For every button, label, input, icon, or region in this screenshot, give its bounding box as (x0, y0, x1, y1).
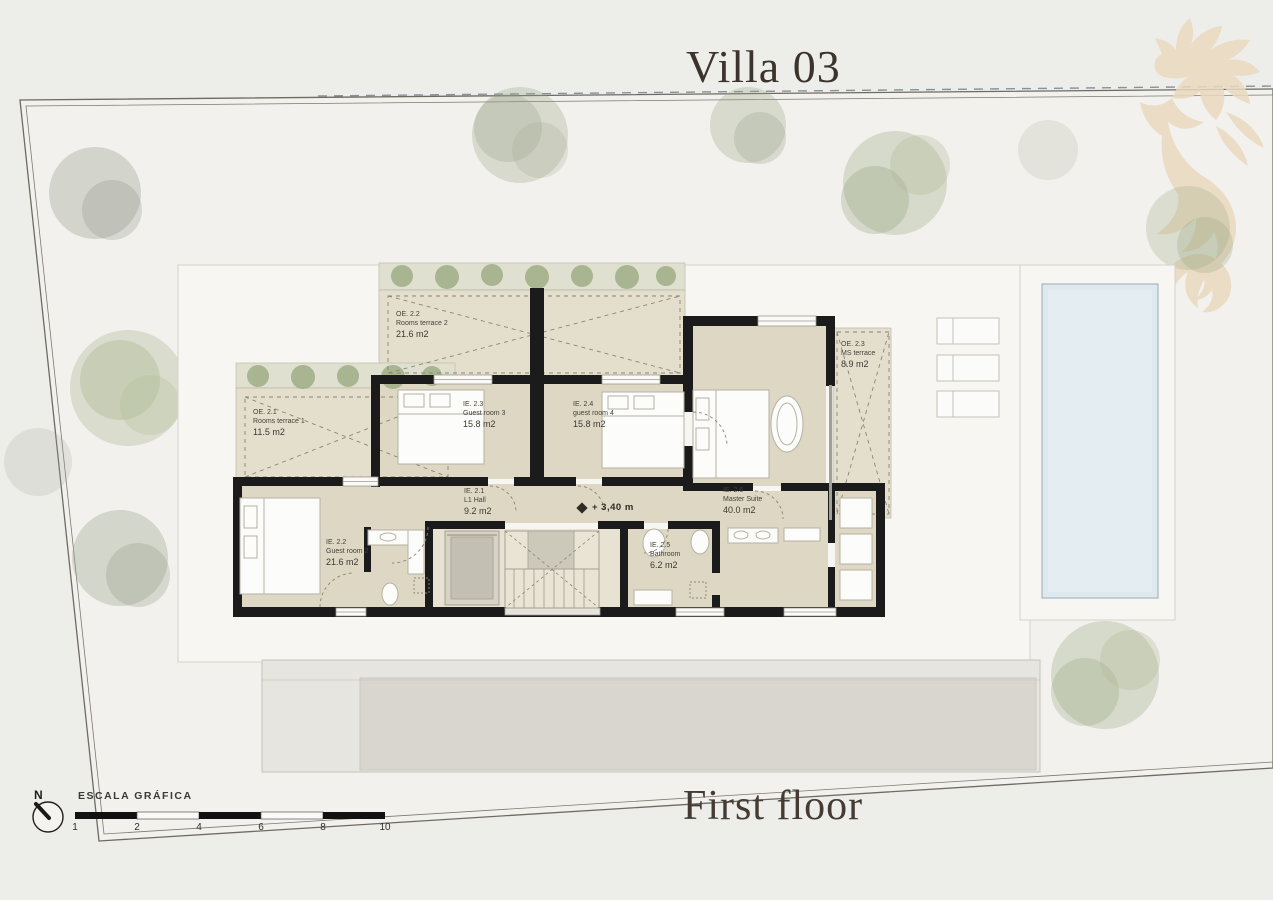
tree-icon (571, 265, 593, 287)
room-area: 11.5 m2 (253, 427, 353, 439)
tree-icon (247, 365, 269, 387)
closet-icon (445, 531, 499, 605)
bench-icon (784, 528, 820, 541)
scale-tick: 10 (379, 822, 390, 833)
room-code: OE. 2.3 (841, 340, 889, 349)
room-name: Rooms terrace 1 (253, 417, 353, 426)
room-name: Bathroom (650, 550, 702, 559)
north-label: N (34, 788, 43, 802)
room-code: IE. 2.5 (650, 541, 702, 550)
room-label-master-suite: IE. 2.6 Master Suite 40.0 m2 (723, 486, 813, 517)
lounger-icon (937, 318, 999, 344)
room-area: 21.6 m2 (396, 329, 496, 341)
room-name: Master Suite (723, 495, 813, 504)
room-name: L1 Hall (464, 496, 544, 505)
floorplan-drawing (0, 0, 1273, 900)
scale-tick: 6 (258, 822, 264, 833)
level-marker: + 3,40 m (592, 502, 634, 513)
bathtub-icon (771, 396, 803, 452)
vanity-icon (728, 528, 778, 543)
tree-icon (435, 265, 459, 289)
room-code: IE. 2.6 (723, 486, 813, 495)
room-label-rooms-terrace-1: OE. 2.1 Rooms terrace 1 11.5 m2 (253, 408, 353, 439)
room-name: Rooms terrace 2 (396, 319, 496, 328)
tree-icon (291, 365, 315, 389)
tree-icon (4, 428, 72, 496)
room-label-guest-room-4: IE. 2.4 guest room 4 15.8 m2 (573, 400, 663, 431)
scale-bar (75, 812, 385, 819)
room-label-bathroom: IE. 2.5 Bathroom 6.2 m2 (650, 541, 702, 572)
room-name: Guest room 3 (463, 409, 553, 418)
scale-tick: 2 (134, 822, 140, 833)
floorplan-sheet: Villa 03 First floor OE. 2.2 Rooms terra… (0, 0, 1273, 900)
room-label-ms-terrace: OE. 2.3 MS terrace 8.9 m2 (841, 340, 889, 371)
scale-bar-label: ESCALA GRÁFICA (78, 790, 193, 802)
scale-tick: 4 (196, 822, 202, 833)
room-area: 15.8 m2 (573, 419, 663, 431)
tree-icon (525, 265, 549, 289)
room-area: 40.0 m2 (723, 505, 813, 517)
page-title: Villa 03 (686, 40, 841, 93)
scale-tick: 1 (72, 822, 78, 833)
tree-icon (337, 365, 359, 387)
room-name: guest room 4 (573, 409, 663, 418)
bed-icon (693, 390, 769, 478)
room-code: IE. 2.4 (573, 400, 663, 409)
room-area: 15.8 m2 (463, 419, 553, 431)
pool (1042, 284, 1158, 598)
tree-icon (656, 266, 676, 286)
tree-icon (472, 87, 568, 183)
room-code: IE. 2.1 (464, 487, 544, 496)
driveway (262, 660, 1040, 772)
room-area: 9.2 m2 (464, 506, 544, 518)
lounger-icon (937, 355, 999, 381)
room-label-hall: IE. 2.1 L1 Hall 9.2 m2 (464, 487, 544, 518)
room-code: OE. 2.1 (253, 408, 353, 417)
tree-icon (391, 265, 413, 287)
room-label-rooms-terrace-2: OE. 2.2 Rooms terrace 2 21.6 m2 (396, 310, 496, 341)
toilet-icon (382, 583, 398, 605)
room-name: MS terrace (841, 349, 889, 358)
north-arrow-icon (33, 802, 63, 832)
room-area: 21.6 m2 (326, 557, 416, 569)
sun-loungers (937, 318, 999, 417)
room-code: OE. 2.2 (396, 310, 496, 319)
bed-icon (240, 498, 320, 594)
level-value: + 3,40 m (592, 502, 634, 513)
room-area: 8.9 m2 (841, 359, 889, 371)
terrace-sliding-glass (829, 385, 832, 520)
room-area: 6.2 m2 (650, 560, 702, 572)
room-label-guest-room-2: IE. 2.2 Guest room 2 21.6 m2 (326, 538, 416, 569)
wardrobe-icon (840, 498, 872, 600)
tree-icon (1018, 120, 1078, 180)
tree-icon (70, 330, 186, 446)
staircase (505, 531, 599, 608)
shower-tray-icon (634, 590, 672, 605)
room-code: IE. 2.3 (463, 400, 553, 409)
floor-label: First floor (683, 782, 863, 830)
room-code: IE. 2.2 (326, 538, 416, 547)
tree-icon (615, 265, 639, 289)
stair-glass (505, 608, 600, 615)
room-name: Guest room 2 (326, 547, 416, 556)
tree-icon (481, 264, 503, 286)
room-label-guest-room-3: IE. 2.3 Guest room 3 15.8 m2 (463, 400, 553, 431)
scale-tick: 8 (320, 822, 326, 833)
lounger-icon (937, 391, 999, 417)
